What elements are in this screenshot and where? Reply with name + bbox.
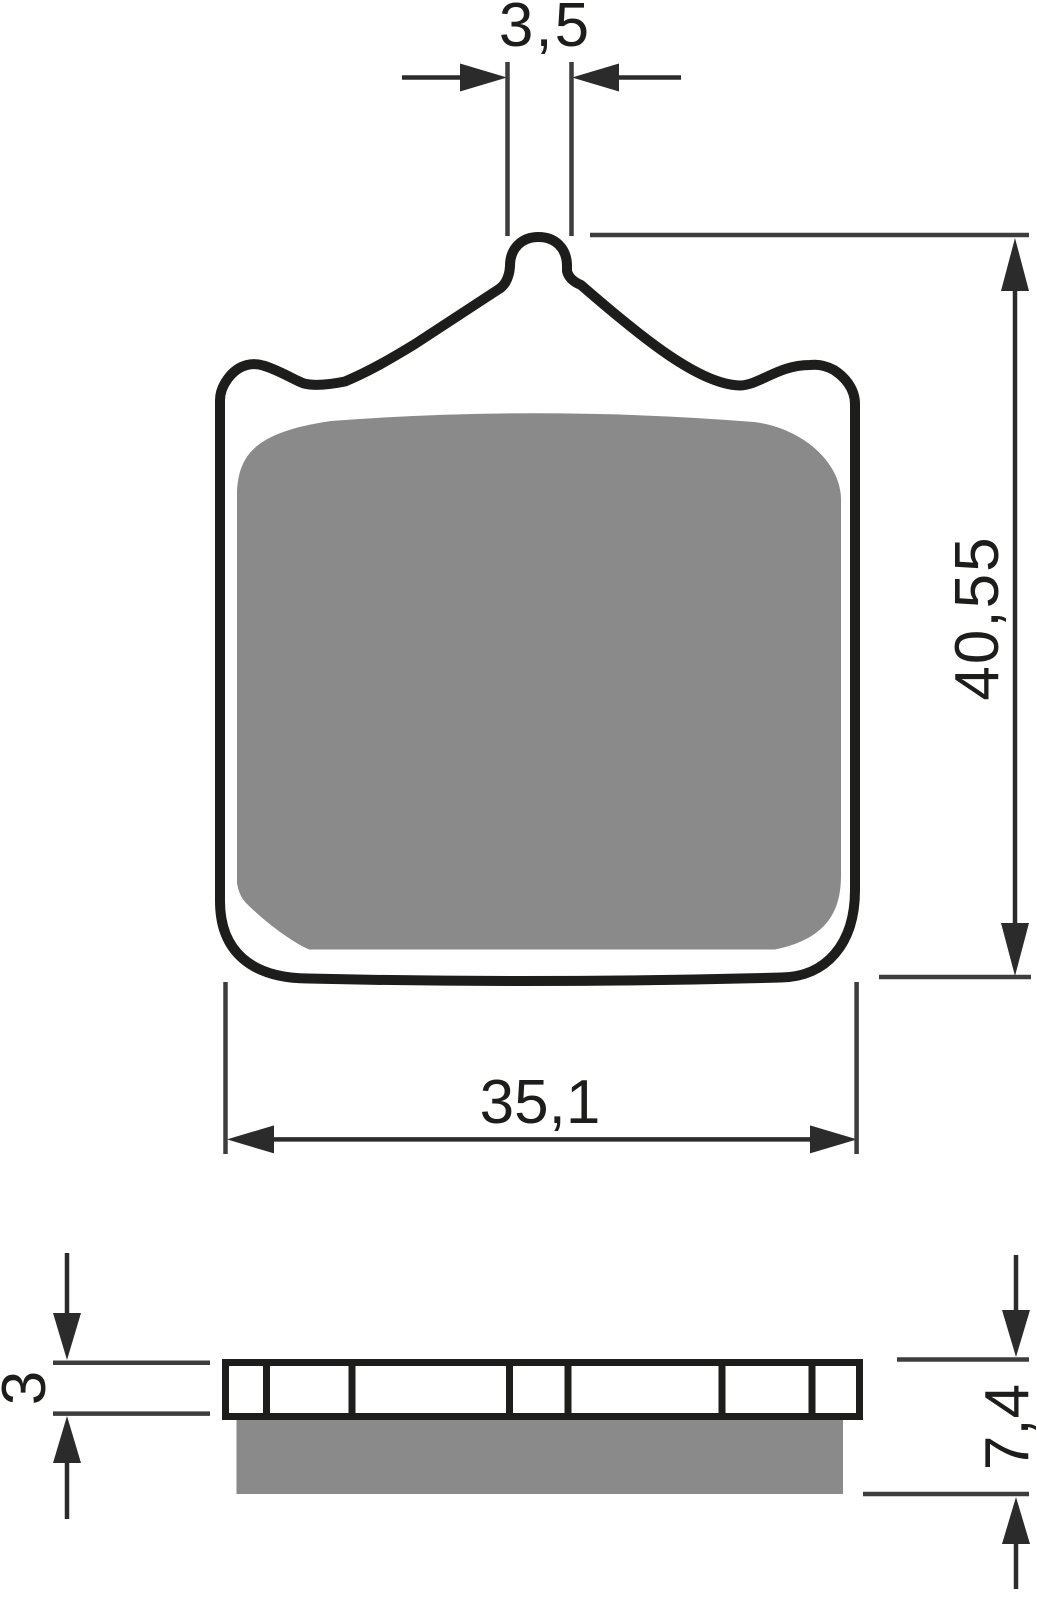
svg-text:40,55: 40,55: [943, 535, 1012, 700]
svg-text:3,5: 3,5: [499, 0, 591, 60]
svg-text:7,4: 7,4: [973, 1384, 1037, 1470]
svg-text:35,1: 35,1: [480, 1068, 601, 1137]
svg-text:3: 3: [0, 1371, 59, 1405]
